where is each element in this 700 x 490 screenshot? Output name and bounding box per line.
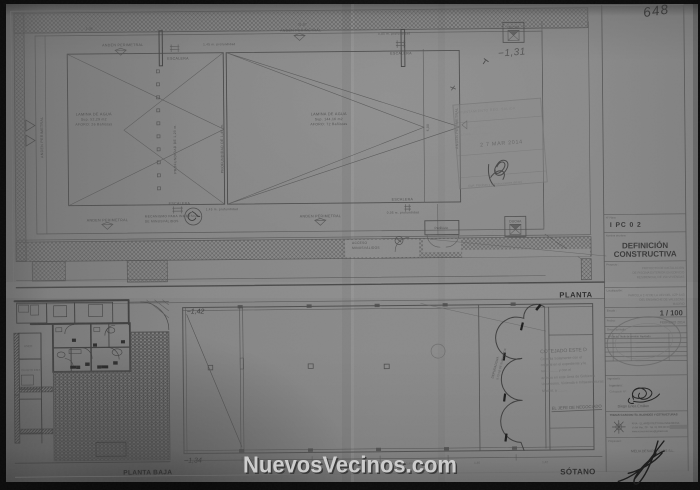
svg-text:NuevosVecinos.com: NuevosVecinos.com	[243, 452, 457, 478]
